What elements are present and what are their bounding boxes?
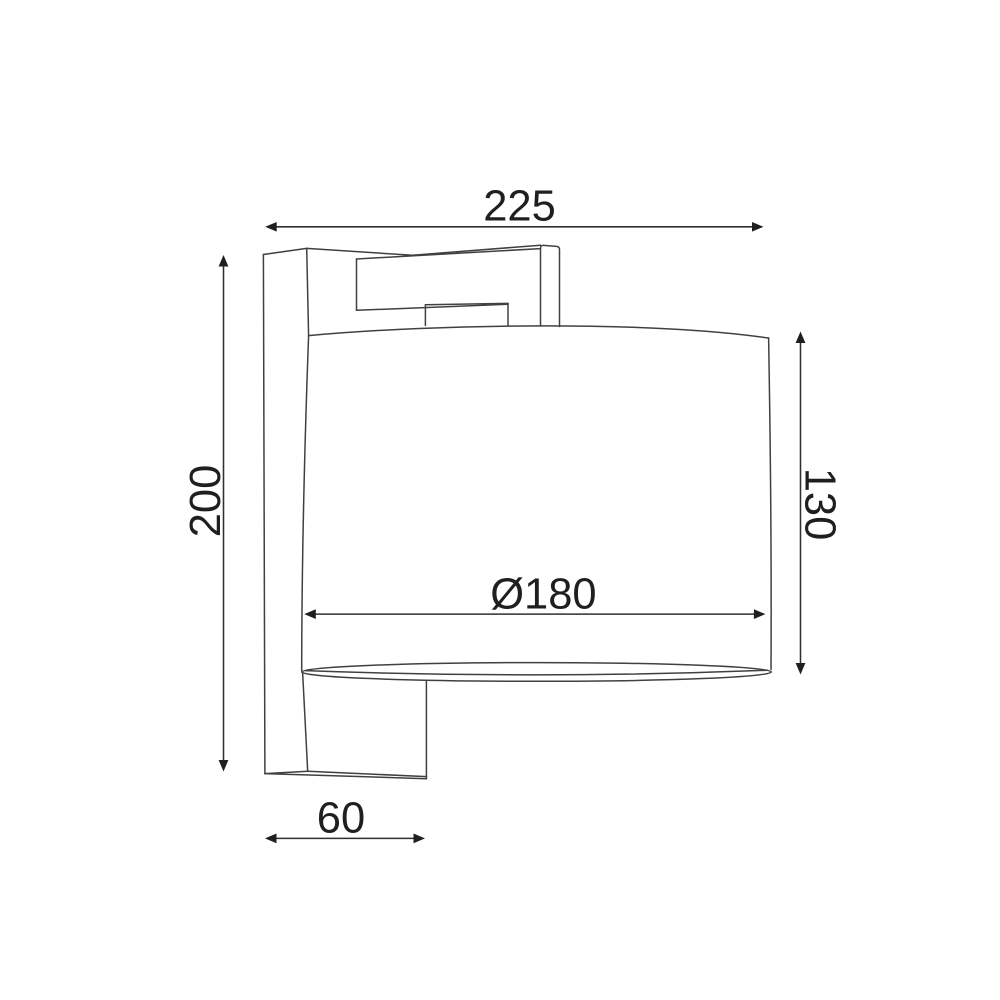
svg-text:130: 130 xyxy=(796,468,844,541)
svg-text:200: 200 xyxy=(182,465,230,538)
svg-text:Ø180: Ø180 xyxy=(490,571,596,619)
svg-text:225: 225 xyxy=(483,183,556,231)
svg-text:60: 60 xyxy=(317,795,365,843)
